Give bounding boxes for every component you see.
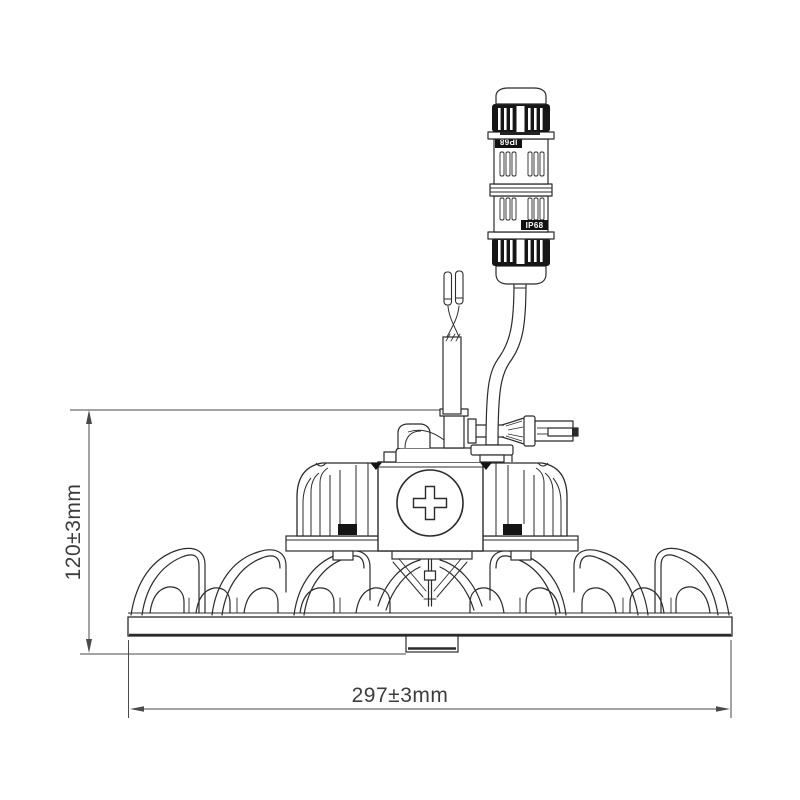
ip68-label-lower: IP68 (526, 221, 544, 230)
upper-body: IP68 (494, 137, 548, 184)
eyelet (398, 424, 430, 448)
cable-gland-flange (471, 445, 513, 455)
ip68-connector: IP68 IP68 (488, 88, 554, 288)
technical-drawing-page: 120±3mm 297±3mm (0, 0, 800, 800)
fins-left (131, 548, 426, 615)
vent-left (338, 524, 357, 535)
lower-body: IP68 (494, 196, 548, 232)
base-disc (128, 613, 732, 652)
arrowhead-down (86, 639, 92, 653)
center-rod (424, 560, 436, 606)
upper-ring (488, 132, 554, 139)
bottom-cap (496, 266, 546, 284)
width-dimension-label: 297±3mm (352, 684, 449, 707)
arrowhead-up (86, 410, 92, 424)
lead-gland-post (444, 414, 464, 448)
side-cable-connector (468, 416, 578, 446)
strain-relief-cone (502, 418, 524, 444)
arrowhead-left (130, 706, 144, 712)
bottom-gland (492, 238, 550, 266)
flying-leads (443, 271, 463, 414)
top-gland (492, 104, 550, 132)
base-rim (128, 617, 732, 636)
mounting-plate (370, 462, 492, 551)
main-cable (471, 283, 526, 462)
lower-ring (488, 232, 554, 239)
lead-jacket (443, 337, 461, 414)
vent-right (503, 524, 522, 535)
coupling-ring (490, 184, 552, 196)
arrowhead-right (716, 706, 730, 712)
luminaire-dimension-drawing: 120±3mm 297±3mm (0, 0, 800, 800)
wire-ferrule-pins (444, 271, 463, 305)
bottom-tab (406, 636, 458, 652)
fins-right (434, 548, 729, 615)
top-cap (496, 88, 546, 104)
height-dimension-label: 120±3mm (62, 484, 85, 581)
